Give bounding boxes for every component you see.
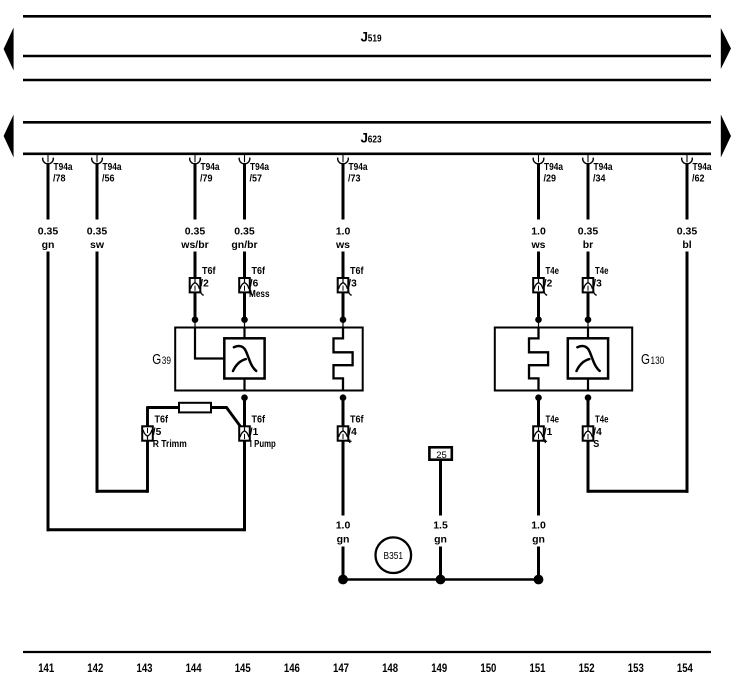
- svg-text:T94a: T94a: [349, 162, 368, 173]
- svg-text:/29: /29: [544, 174, 557, 185]
- svg-text:gn: gn: [42, 239, 55, 251]
- svg-text:T94a: T94a: [103, 162, 122, 173]
- svg-text:147: 147: [333, 661, 349, 675]
- svg-text:/5: /5: [153, 427, 162, 438]
- svg-text:1.0: 1.0: [336, 520, 351, 532]
- svg-text:T6f: T6f: [202, 266, 216, 277]
- svg-text:T4e: T4e: [546, 266, 560, 277]
- svg-text:T6f: T6f: [350, 414, 364, 425]
- svg-text:142: 142: [87, 661, 103, 675]
- svg-text:gn/br: gn/br: [231, 239, 257, 251]
- svg-text:T94a: T94a: [693, 162, 712, 173]
- svg-text:/34: /34: [593, 174, 606, 185]
- svg-text:T6f: T6f: [155, 414, 169, 425]
- svg-text:144: 144: [186, 661, 202, 675]
- svg-text:/79: /79: [200, 174, 213, 185]
- svg-text:/4: /4: [348, 427, 357, 438]
- svg-text:/4: /4: [593, 427, 602, 438]
- svg-text:151: 151: [530, 661, 546, 675]
- svg-text:I Pump: I Pump: [250, 439, 276, 450]
- svg-text:gn: gn: [532, 533, 545, 545]
- svg-text:T4e: T4e: [595, 266, 609, 277]
- svg-text:/62: /62: [692, 174, 705, 185]
- svg-text:0.35: 0.35: [87, 225, 108, 237]
- svg-text:T4e: T4e: [546, 414, 560, 425]
- svg-text:/1: /1: [544, 427, 553, 438]
- svg-text:/57: /57: [250, 174, 263, 185]
- svg-text:/73: /73: [348, 174, 361, 185]
- svg-text:519: 519: [368, 32, 382, 44]
- svg-text:ws: ws: [530, 239, 545, 251]
- svg-text:G: G: [641, 352, 650, 368]
- svg-text:sw: sw: [90, 239, 105, 251]
- svg-text:T94a: T94a: [250, 162, 269, 173]
- svg-text:0.35: 0.35: [677, 225, 698, 237]
- svg-text:0.35: 0.35: [38, 225, 59, 237]
- svg-text:/2: /2: [544, 279, 553, 290]
- svg-text:B351: B351: [384, 551, 404, 562]
- svg-text:T94a: T94a: [54, 162, 73, 173]
- svg-text:146: 146: [284, 661, 300, 675]
- svg-text:1.0: 1.0: [531, 520, 546, 532]
- svg-text:0.35: 0.35: [578, 225, 599, 237]
- svg-text:0.35: 0.35: [185, 225, 206, 237]
- svg-text:/56: /56: [102, 174, 115, 185]
- svg-text:gn: gn: [337, 533, 350, 545]
- svg-text:25: 25: [436, 450, 447, 461]
- svg-text:148: 148: [382, 661, 398, 675]
- svg-text:1.0: 1.0: [531, 225, 546, 237]
- svg-text:145: 145: [235, 661, 251, 675]
- svg-text:153: 153: [628, 661, 644, 675]
- svg-text:R Trimm: R Trimm: [153, 439, 187, 450]
- svg-text:gn: gn: [434, 533, 447, 545]
- svg-text:141: 141: [38, 661, 54, 675]
- svg-text:T6f: T6f: [252, 266, 266, 277]
- svg-text:T4e: T4e: [595, 414, 609, 425]
- svg-text:/1: /1: [250, 427, 259, 438]
- svg-text:152: 152: [579, 661, 595, 675]
- svg-text:S: S: [593, 439, 599, 450]
- svg-text:G: G: [152, 352, 161, 368]
- svg-text:ws/br: ws/br: [180, 239, 208, 251]
- svg-text:154: 154: [677, 661, 693, 675]
- svg-text:1.0: 1.0: [336, 225, 351, 237]
- svg-text:623: 623: [368, 133, 382, 145]
- svg-text:T6f: T6f: [252, 414, 266, 425]
- svg-text:39: 39: [162, 355, 171, 367]
- svg-text:/2: /2: [200, 279, 209, 290]
- svg-text:1.5: 1.5: [433, 520, 448, 532]
- svg-text:0.35: 0.35: [234, 225, 255, 237]
- svg-text:/3: /3: [593, 279, 602, 290]
- svg-text:bl: bl: [682, 239, 691, 251]
- svg-text:T94a: T94a: [201, 162, 220, 173]
- svg-text:T94a: T94a: [544, 162, 563, 173]
- svg-text:/78: /78: [53, 174, 66, 185]
- svg-text:T6f: T6f: [350, 266, 364, 277]
- svg-text:br: br: [583, 239, 594, 251]
- svg-text:149: 149: [431, 661, 447, 675]
- svg-text:150: 150: [480, 661, 496, 675]
- svg-text:/3: /3: [348, 279, 357, 290]
- svg-text:Mess: Mess: [249, 289, 270, 300]
- svg-text:T94a: T94a: [594, 162, 613, 173]
- svg-text:143: 143: [137, 661, 153, 675]
- svg-text:ws: ws: [335, 239, 350, 251]
- svg-text:130: 130: [651, 355, 665, 367]
